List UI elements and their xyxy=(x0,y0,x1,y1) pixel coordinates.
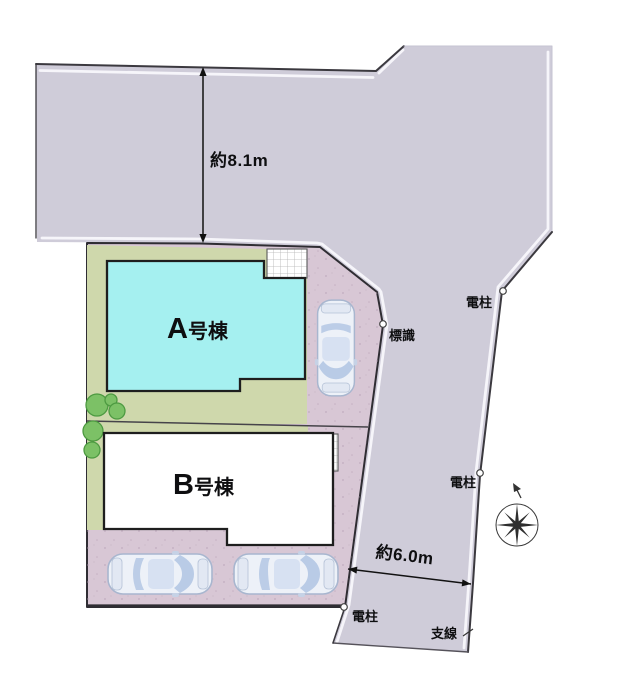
site-plan: A号棟 B号棟 xyxy=(0,0,620,684)
car-icon xyxy=(315,300,357,396)
car-icon xyxy=(234,551,338,597)
car-icon xyxy=(108,551,212,597)
guy-wire-label: 支線 xyxy=(430,626,458,641)
dimension-label-top-road: 約8.1m xyxy=(210,150,268,170)
pole-label-top: 電柱 xyxy=(466,295,492,310)
porch-hatch-a xyxy=(267,249,307,278)
pole-marker-top xyxy=(500,288,507,295)
pole-label-mid: 電柱 xyxy=(450,475,476,490)
pole-label-bottom: 電柱 xyxy=(352,609,378,624)
sign-label: 標識 xyxy=(389,328,415,343)
sign-marker xyxy=(380,321,387,328)
pole-marker-bottom xyxy=(341,604,348,611)
site-plan-svg: A号棟 B号棟 xyxy=(0,0,620,684)
pole-marker-mid xyxy=(477,470,484,477)
